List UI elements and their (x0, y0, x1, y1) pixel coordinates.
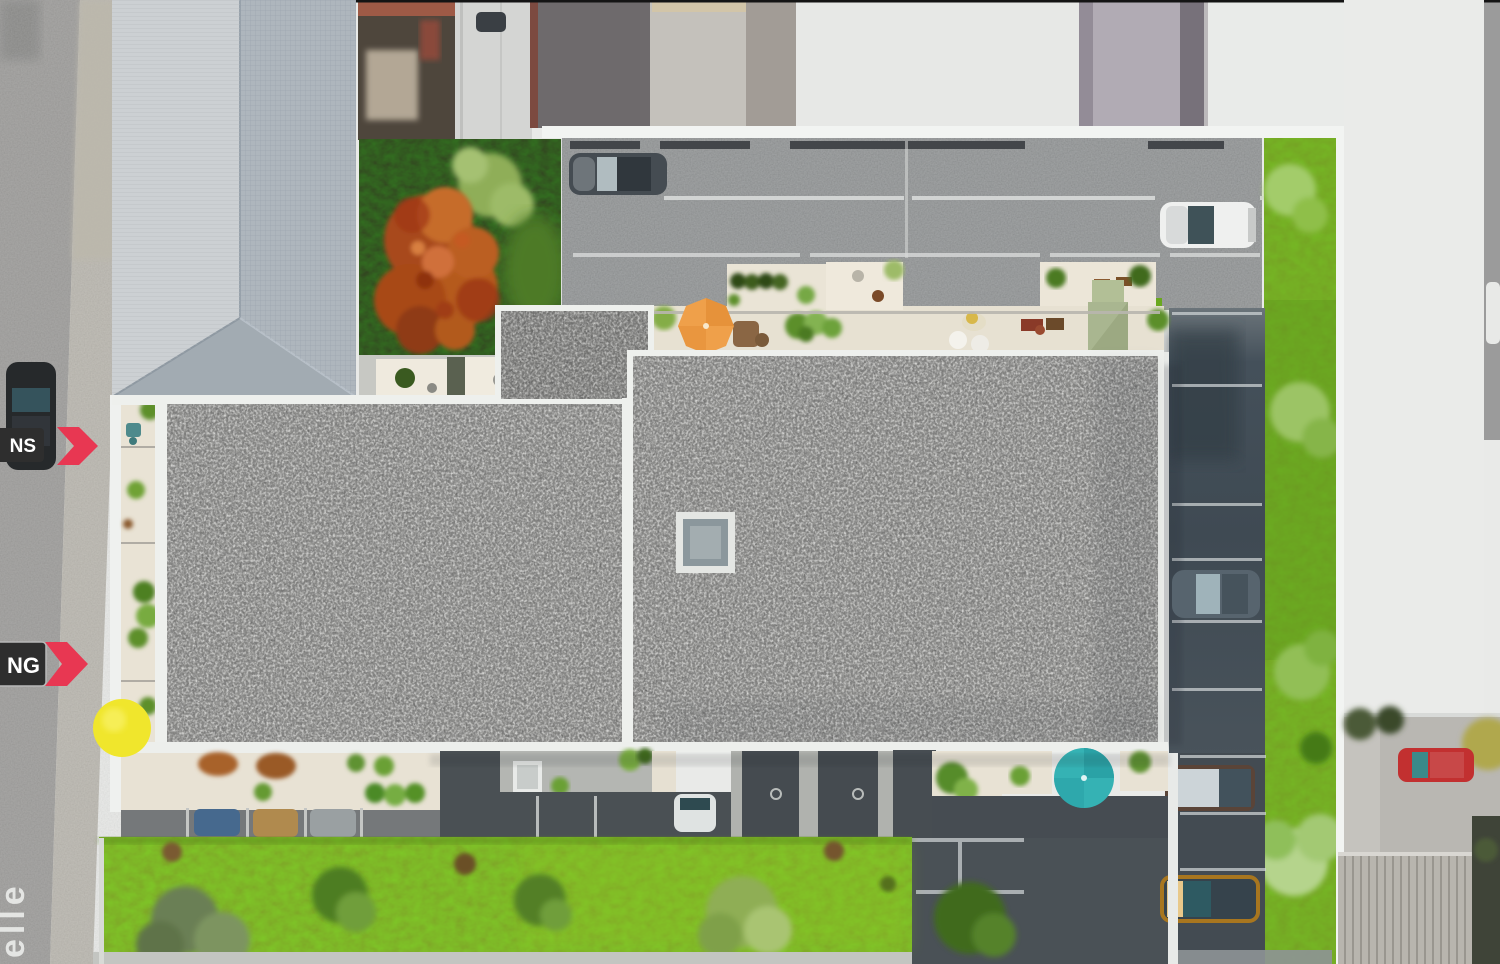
svg-text:NG: NG (7, 653, 40, 678)
svg-text:NS: NS (10, 436, 36, 457)
svg-text:elle: elle (0, 881, 32, 958)
